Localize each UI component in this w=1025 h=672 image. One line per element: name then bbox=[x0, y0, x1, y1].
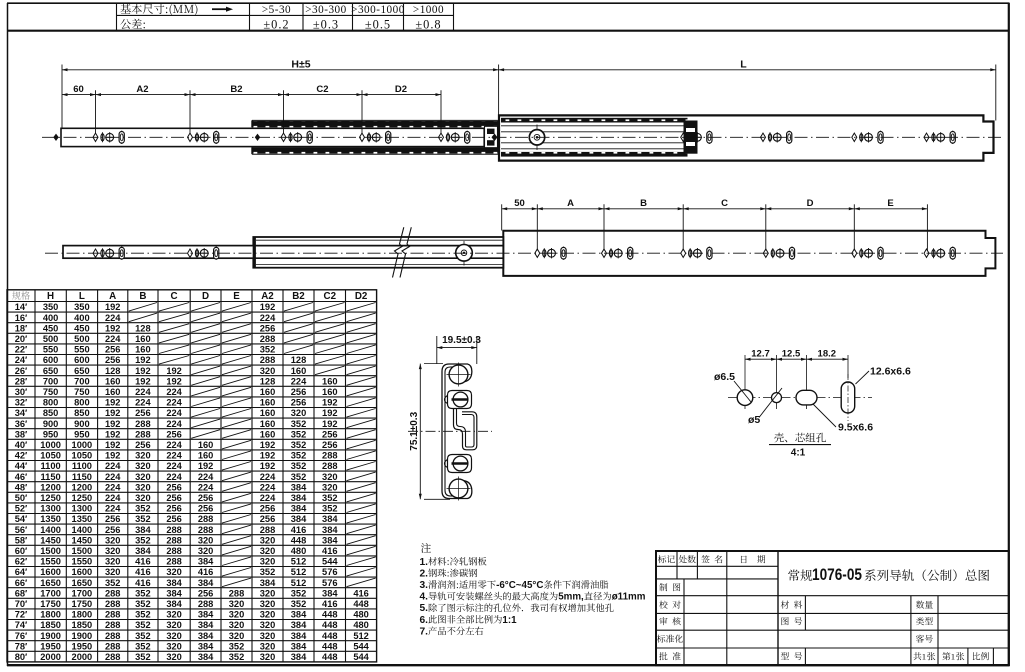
svg-text:L: L bbox=[740, 58, 747, 70]
svg-text:36′: 36′ bbox=[15, 419, 28, 429]
svg-text:320: 320 bbox=[322, 472, 338, 482]
svg-text:>30-300: >30-300 bbox=[305, 4, 347, 16]
svg-text:192: 192 bbox=[260, 451, 276, 461]
svg-text:192: 192 bbox=[105, 302, 121, 312]
svg-text:192: 192 bbox=[105, 451, 121, 461]
svg-text:320: 320 bbox=[166, 620, 182, 630]
svg-text:900: 900 bbox=[43, 419, 59, 429]
svg-text:352: 352 bbox=[135, 610, 151, 620]
svg-text:>5-30: >5-30 bbox=[262, 4, 291, 16]
svg-text:46′: 46′ bbox=[15, 472, 28, 482]
svg-text:44′: 44′ bbox=[15, 461, 28, 471]
svg-text:384: 384 bbox=[322, 588, 338, 598]
svg-text:224: 224 bbox=[166, 461, 182, 471]
svg-text:58′: 58′ bbox=[15, 535, 28, 545]
svg-text:320: 320 bbox=[260, 535, 276, 545]
svg-text:1800: 1800 bbox=[72, 610, 93, 620]
svg-text:544: 544 bbox=[353, 641, 369, 651]
svg-text:2000: 2000 bbox=[72, 652, 93, 662]
svg-text:1350: 1350 bbox=[40, 514, 61, 524]
svg-text:16′: 16′ bbox=[15, 313, 28, 323]
svg-text:128: 128 bbox=[260, 376, 276, 386]
svg-text:1750: 1750 bbox=[72, 599, 93, 609]
svg-text:1076-05: 1076-05 bbox=[812, 566, 862, 584]
svg-text:1850: 1850 bbox=[72, 620, 93, 630]
svg-text:B: B bbox=[640, 198, 647, 209]
svg-text:1750: 1750 bbox=[40, 599, 61, 609]
svg-text:2000: 2000 bbox=[40, 652, 61, 662]
svg-text:384: 384 bbox=[291, 641, 307, 651]
svg-text:1950: 1950 bbox=[72, 641, 93, 651]
svg-text:320: 320 bbox=[105, 557, 121, 567]
svg-text:224: 224 bbox=[260, 482, 276, 492]
svg-text:D2: D2 bbox=[355, 291, 368, 302]
svg-text:320: 320 bbox=[322, 482, 338, 492]
svg-text:900: 900 bbox=[74, 419, 90, 429]
svg-text:192: 192 bbox=[105, 429, 121, 439]
svg-text:160: 160 bbox=[198, 440, 214, 450]
svg-text:A2: A2 bbox=[261, 291, 274, 302]
svg-text:320: 320 bbox=[166, 610, 182, 620]
svg-text:850: 850 bbox=[74, 408, 90, 418]
svg-text:2.: 2. bbox=[420, 568, 429, 579]
svg-text:288: 288 bbox=[166, 535, 182, 545]
svg-text:1450: 1450 bbox=[40, 535, 61, 545]
svg-text:224: 224 bbox=[105, 334, 121, 344]
svg-text:1400: 1400 bbox=[40, 525, 61, 535]
svg-text:54′: 54′ bbox=[15, 514, 28, 524]
svg-text:1250: 1250 bbox=[40, 493, 61, 503]
svg-text:1250: 1250 bbox=[72, 493, 93, 503]
svg-text:384: 384 bbox=[135, 546, 151, 556]
svg-text:224: 224 bbox=[166, 398, 182, 408]
svg-text:192: 192 bbox=[135, 366, 151, 376]
svg-text:52′: 52′ bbox=[15, 504, 28, 514]
svg-text:650: 650 bbox=[43, 366, 59, 376]
svg-text:352: 352 bbox=[291, 472, 307, 482]
svg-text:448: 448 bbox=[291, 535, 307, 545]
svg-text:320: 320 bbox=[135, 472, 151, 482]
svg-text:700: 700 bbox=[74, 376, 90, 386]
svg-text:192: 192 bbox=[322, 398, 338, 408]
svg-text:160: 160 bbox=[291, 366, 307, 376]
svg-text:1700: 1700 bbox=[40, 588, 61, 598]
svg-text:384: 384 bbox=[135, 525, 151, 535]
svg-text:14′: 14′ bbox=[15, 302, 28, 312]
svg-text:352: 352 bbox=[291, 599, 307, 609]
svg-text:352: 352 bbox=[135, 599, 151, 609]
svg-text:320: 320 bbox=[135, 493, 151, 503]
svg-text:320: 320 bbox=[260, 546, 276, 556]
svg-text:384: 384 bbox=[291, 482, 307, 492]
svg-text:480: 480 bbox=[291, 546, 307, 556]
svg-text:448: 448 bbox=[353, 599, 369, 609]
svg-text:256: 256 bbox=[291, 387, 307, 397]
svg-text:750: 750 bbox=[74, 387, 90, 397]
svg-text:50: 50 bbox=[514, 198, 525, 209]
svg-text:256: 256 bbox=[105, 355, 121, 365]
svg-text:192: 192 bbox=[105, 419, 121, 429]
svg-text:B: B bbox=[139, 291, 146, 302]
svg-text:192: 192 bbox=[105, 440, 121, 450]
svg-text:1300: 1300 bbox=[40, 504, 61, 514]
svg-text:512: 512 bbox=[353, 631, 369, 641]
svg-text:320: 320 bbox=[229, 610, 245, 620]
svg-text:1650: 1650 bbox=[72, 578, 93, 588]
svg-text:256: 256 bbox=[135, 408, 151, 418]
svg-text:288: 288 bbox=[260, 355, 276, 365]
svg-text:>1000: >1000 bbox=[413, 4, 444, 16]
svg-text:160: 160 bbox=[260, 419, 276, 429]
svg-text:384: 384 bbox=[291, 631, 307, 641]
svg-text:192: 192 bbox=[260, 440, 276, 450]
svg-text:192: 192 bbox=[166, 376, 182, 386]
svg-text:320: 320 bbox=[166, 631, 182, 641]
svg-text:192: 192 bbox=[135, 376, 151, 386]
svg-text:224: 224 bbox=[260, 493, 276, 503]
svg-text:22′: 22′ bbox=[15, 345, 28, 355]
svg-text:D: D bbox=[807, 198, 814, 209]
svg-text:416: 416 bbox=[135, 557, 151, 567]
svg-text:288: 288 bbox=[166, 525, 182, 535]
svg-text:1.: 1. bbox=[420, 557, 429, 568]
svg-text:40′: 40′ bbox=[15, 440, 28, 450]
svg-text:224: 224 bbox=[135, 387, 151, 397]
svg-text:3.: 3. bbox=[420, 580, 429, 591]
svg-text:384: 384 bbox=[198, 620, 214, 630]
svg-text:384: 384 bbox=[198, 557, 214, 567]
svg-text:L: L bbox=[79, 291, 85, 302]
svg-text:320: 320 bbox=[229, 620, 245, 630]
svg-text:30′: 30′ bbox=[15, 387, 28, 397]
svg-text:350: 350 bbox=[74, 302, 90, 312]
svg-text:544: 544 bbox=[322, 557, 338, 567]
svg-text:950: 950 bbox=[43, 429, 59, 439]
svg-text:1600: 1600 bbox=[72, 567, 93, 577]
svg-text:7.: 7. bbox=[420, 626, 429, 637]
svg-text:160: 160 bbox=[105, 387, 121, 397]
svg-text:H±5: H±5 bbox=[291, 58, 310, 70]
svg-text:192: 192 bbox=[105, 323, 121, 333]
svg-text:288: 288 bbox=[105, 588, 121, 598]
svg-text:352: 352 bbox=[135, 535, 151, 545]
svg-text:384: 384 bbox=[198, 652, 214, 662]
svg-text:750: 750 bbox=[43, 387, 59, 397]
svg-text:352: 352 bbox=[260, 345, 276, 355]
svg-text:320: 320 bbox=[135, 482, 151, 492]
svg-text:24′: 24′ bbox=[15, 355, 28, 365]
svg-text:320: 320 bbox=[198, 535, 214, 545]
svg-text:E: E bbox=[887, 198, 893, 209]
svg-text:320: 320 bbox=[260, 588, 276, 598]
svg-text:C: C bbox=[721, 198, 728, 209]
svg-text:224: 224 bbox=[105, 493, 121, 503]
svg-text:384: 384 bbox=[291, 504, 307, 514]
svg-text:256: 256 bbox=[322, 429, 338, 439]
svg-text:224: 224 bbox=[166, 440, 182, 450]
svg-text:650: 650 bbox=[74, 366, 90, 376]
svg-text:288: 288 bbox=[260, 525, 276, 535]
svg-text:224: 224 bbox=[166, 387, 182, 397]
svg-text:288: 288 bbox=[322, 451, 338, 461]
svg-text:512: 512 bbox=[291, 557, 307, 567]
svg-text:C2: C2 bbox=[324, 291, 337, 302]
svg-text:192: 192 bbox=[166, 366, 182, 376]
svg-text:1150: 1150 bbox=[72, 472, 92, 482]
svg-text:192: 192 bbox=[105, 398, 121, 408]
svg-text:1500: 1500 bbox=[72, 546, 93, 556]
svg-text:1600: 1600 bbox=[40, 567, 61, 577]
svg-text:320: 320 bbox=[105, 546, 121, 556]
svg-text:384: 384 bbox=[322, 535, 338, 545]
svg-text:192: 192 bbox=[260, 461, 276, 471]
svg-text:A: A bbox=[567, 198, 574, 209]
svg-text:384: 384 bbox=[198, 641, 214, 651]
svg-text:1500: 1500 bbox=[40, 546, 61, 556]
svg-text:320: 320 bbox=[166, 641, 182, 651]
svg-text:256: 256 bbox=[291, 398, 307, 408]
svg-text:1650: 1650 bbox=[40, 578, 61, 588]
svg-text:512: 512 bbox=[291, 567, 307, 577]
svg-text:1550: 1550 bbox=[72, 557, 93, 567]
svg-text:350: 350 bbox=[43, 302, 59, 312]
svg-text:384: 384 bbox=[291, 514, 307, 524]
svg-text:448: 448 bbox=[322, 641, 338, 651]
svg-text:288: 288 bbox=[260, 334, 276, 344]
svg-text:288: 288 bbox=[198, 599, 214, 609]
svg-text:600: 600 bbox=[74, 355, 90, 365]
svg-text:352: 352 bbox=[135, 588, 151, 598]
svg-text:288: 288 bbox=[135, 419, 151, 429]
svg-text:1050: 1050 bbox=[40, 451, 61, 461]
svg-text:48′: 48′ bbox=[15, 482, 28, 492]
svg-text:80′: 80′ bbox=[15, 652, 28, 662]
svg-text:4:1: 4:1 bbox=[791, 448, 806, 459]
svg-text:1900: 1900 bbox=[40, 631, 61, 641]
svg-text:352: 352 bbox=[229, 652, 245, 662]
svg-text:68′: 68′ bbox=[15, 588, 28, 598]
svg-text:62′: 62′ bbox=[15, 557, 28, 567]
svg-text:480: 480 bbox=[353, 620, 369, 630]
svg-text:ø6.5: ø6.5 bbox=[714, 371, 735, 383]
svg-text:416: 416 bbox=[291, 525, 307, 535]
svg-text:288: 288 bbox=[198, 514, 214, 524]
svg-text:70′: 70′ bbox=[15, 599, 28, 609]
svg-text:416: 416 bbox=[322, 546, 338, 556]
svg-text:320: 320 bbox=[229, 599, 245, 609]
svg-text:1:1: 1:1 bbox=[502, 615, 517, 626]
svg-text:64′: 64′ bbox=[15, 567, 28, 577]
svg-text:384: 384 bbox=[198, 631, 214, 641]
svg-text:320: 320 bbox=[260, 610, 276, 620]
svg-text:288: 288 bbox=[322, 461, 338, 471]
svg-text:160: 160 bbox=[135, 345, 151, 355]
svg-text:C2: C2 bbox=[316, 84, 328, 95]
svg-text:256: 256 bbox=[322, 440, 338, 450]
svg-text:B2: B2 bbox=[230, 84, 242, 95]
svg-text:A2: A2 bbox=[136, 84, 148, 95]
svg-text:B2: B2 bbox=[292, 291, 305, 302]
svg-text:384: 384 bbox=[166, 578, 182, 588]
svg-text:320: 320 bbox=[166, 652, 182, 662]
svg-text:128: 128 bbox=[105, 366, 121, 376]
svg-text:416: 416 bbox=[322, 599, 338, 609]
svg-text:288: 288 bbox=[105, 610, 121, 620]
svg-text:352: 352 bbox=[135, 641, 151, 651]
svg-text:384: 384 bbox=[198, 578, 214, 588]
svg-text:224: 224 bbox=[291, 376, 307, 386]
svg-text:50′: 50′ bbox=[15, 493, 28, 503]
svg-text:288: 288 bbox=[166, 557, 182, 567]
svg-text:1050: 1050 bbox=[72, 451, 93, 461]
svg-text:160: 160 bbox=[322, 387, 338, 397]
svg-text:320: 320 bbox=[260, 620, 276, 630]
svg-text:320: 320 bbox=[291, 408, 307, 418]
svg-text:384: 384 bbox=[166, 588, 182, 598]
svg-text:416: 416 bbox=[135, 567, 151, 577]
svg-text:5mm,: 5mm, bbox=[558, 592, 584, 603]
svg-text:384: 384 bbox=[291, 652, 307, 662]
svg-text:A: A bbox=[109, 291, 116, 302]
svg-text:66′: 66′ bbox=[15, 578, 28, 588]
svg-text:352: 352 bbox=[105, 578, 121, 588]
svg-text:ø11mm: ø11mm bbox=[612, 592, 646, 603]
svg-text:288: 288 bbox=[229, 588, 245, 598]
svg-text:192: 192 bbox=[135, 355, 151, 365]
svg-text:192: 192 bbox=[260, 302, 276, 312]
svg-text:E: E bbox=[233, 291, 240, 302]
svg-text:6.: 6. bbox=[420, 615, 429, 626]
svg-text:18′: 18′ bbox=[15, 323, 28, 333]
svg-text:9.5x6.6: 9.5x6.6 bbox=[838, 422, 873, 434]
svg-text:320: 320 bbox=[229, 631, 245, 641]
svg-text:352: 352 bbox=[135, 620, 151, 630]
svg-text:>300-1000: >300-1000 bbox=[351, 4, 405, 16]
svg-text:256: 256 bbox=[105, 345, 121, 355]
svg-text:288: 288 bbox=[105, 631, 121, 641]
svg-text:400: 400 bbox=[43, 313, 59, 323]
svg-text:C: C bbox=[171, 291, 178, 302]
svg-text:38′: 38′ bbox=[15, 429, 28, 439]
svg-text:1200: 1200 bbox=[72, 482, 93, 492]
svg-text:224: 224 bbox=[198, 472, 214, 482]
svg-text:1150: 1150 bbox=[41, 472, 61, 482]
svg-text:320: 320 bbox=[166, 567, 182, 577]
svg-text:18.2: 18.2 bbox=[818, 348, 837, 359]
svg-text:256: 256 bbox=[135, 440, 151, 450]
svg-text:72′: 72′ bbox=[15, 610, 28, 620]
svg-text:1100: 1100 bbox=[72, 461, 92, 471]
svg-text:224: 224 bbox=[166, 419, 182, 429]
svg-text:450: 450 bbox=[43, 323, 59, 333]
svg-text:256: 256 bbox=[105, 525, 121, 535]
svg-text:384: 384 bbox=[322, 525, 338, 535]
svg-text:950: 950 bbox=[74, 429, 90, 439]
svg-text:352: 352 bbox=[291, 461, 307, 471]
svg-text:576: 576 bbox=[322, 578, 338, 588]
svg-text:224: 224 bbox=[166, 408, 182, 418]
svg-text:288: 288 bbox=[198, 525, 214, 535]
svg-text:12.5: 12.5 bbox=[782, 348, 801, 359]
svg-text:256: 256 bbox=[166, 429, 182, 439]
svg-text:192: 192 bbox=[322, 419, 338, 429]
svg-text:224: 224 bbox=[166, 451, 182, 461]
svg-text:224: 224 bbox=[260, 313, 276, 323]
svg-text:28′: 28′ bbox=[15, 376, 28, 386]
svg-text:448: 448 bbox=[322, 620, 338, 630]
svg-text:384: 384 bbox=[291, 493, 307, 503]
svg-text:1300: 1300 bbox=[72, 504, 93, 514]
svg-text:H: H bbox=[47, 291, 54, 302]
svg-text:256: 256 bbox=[198, 504, 214, 514]
svg-text:352: 352 bbox=[229, 641, 245, 651]
svg-text:352: 352 bbox=[291, 588, 307, 598]
svg-text:352: 352 bbox=[322, 493, 338, 503]
svg-text:256: 256 bbox=[166, 482, 182, 492]
svg-text:288: 288 bbox=[105, 620, 121, 630]
svg-text:±0.8: ±0.8 bbox=[415, 17, 441, 31]
svg-text:256: 256 bbox=[260, 323, 276, 333]
svg-text:450: 450 bbox=[74, 323, 90, 333]
svg-text:384: 384 bbox=[198, 610, 214, 620]
svg-text:160: 160 bbox=[260, 429, 276, 439]
svg-text:1950: 1950 bbox=[40, 641, 61, 651]
svg-text:288: 288 bbox=[105, 652, 121, 662]
svg-text:160: 160 bbox=[135, 334, 151, 344]
svg-text:192: 192 bbox=[322, 408, 338, 418]
svg-text:288: 288 bbox=[105, 641, 121, 651]
svg-text:384: 384 bbox=[260, 578, 276, 588]
svg-text:800: 800 bbox=[74, 398, 90, 408]
svg-text:-6°C~45°C: -6°C~45°C bbox=[496, 580, 543, 591]
svg-text:352: 352 bbox=[291, 429, 307, 439]
svg-text:56′: 56′ bbox=[15, 525, 28, 535]
svg-text:352: 352 bbox=[291, 440, 307, 450]
svg-text:±0.3: ±0.3 bbox=[313, 17, 339, 31]
svg-text:500: 500 bbox=[74, 334, 90, 344]
svg-text:480: 480 bbox=[353, 610, 369, 620]
svg-text:1200: 1200 bbox=[40, 482, 61, 492]
svg-text:1350: 1350 bbox=[72, 514, 93, 524]
svg-text:500: 500 bbox=[43, 334, 59, 344]
svg-text:±0.2: ±0.2 bbox=[263, 17, 289, 31]
svg-text:384: 384 bbox=[322, 514, 338, 524]
svg-text:352: 352 bbox=[135, 631, 151, 641]
svg-text:128: 128 bbox=[135, 323, 151, 333]
svg-text:160: 160 bbox=[322, 376, 338, 386]
svg-text:384: 384 bbox=[291, 610, 307, 620]
svg-text:800: 800 bbox=[43, 398, 59, 408]
svg-text:32′: 32′ bbox=[15, 398, 28, 408]
svg-text:550: 550 bbox=[43, 345, 59, 355]
svg-text:1850: 1850 bbox=[40, 620, 61, 630]
svg-text:320: 320 bbox=[260, 631, 276, 641]
svg-text:320: 320 bbox=[260, 652, 276, 662]
svg-text:224: 224 bbox=[105, 461, 121, 471]
svg-text:160: 160 bbox=[260, 408, 276, 418]
svg-text:76′: 76′ bbox=[15, 631, 28, 641]
svg-text:512: 512 bbox=[291, 578, 307, 588]
svg-text:74′: 74′ bbox=[15, 620, 28, 630]
svg-text:320: 320 bbox=[260, 599, 276, 609]
svg-text:224: 224 bbox=[105, 472, 121, 482]
svg-text:256: 256 bbox=[198, 588, 214, 598]
svg-text:320: 320 bbox=[105, 535, 121, 545]
svg-text:384: 384 bbox=[166, 599, 182, 609]
svg-text:384: 384 bbox=[291, 620, 307, 630]
svg-text:224: 224 bbox=[260, 472, 276, 482]
svg-text:42′: 42′ bbox=[15, 451, 28, 461]
